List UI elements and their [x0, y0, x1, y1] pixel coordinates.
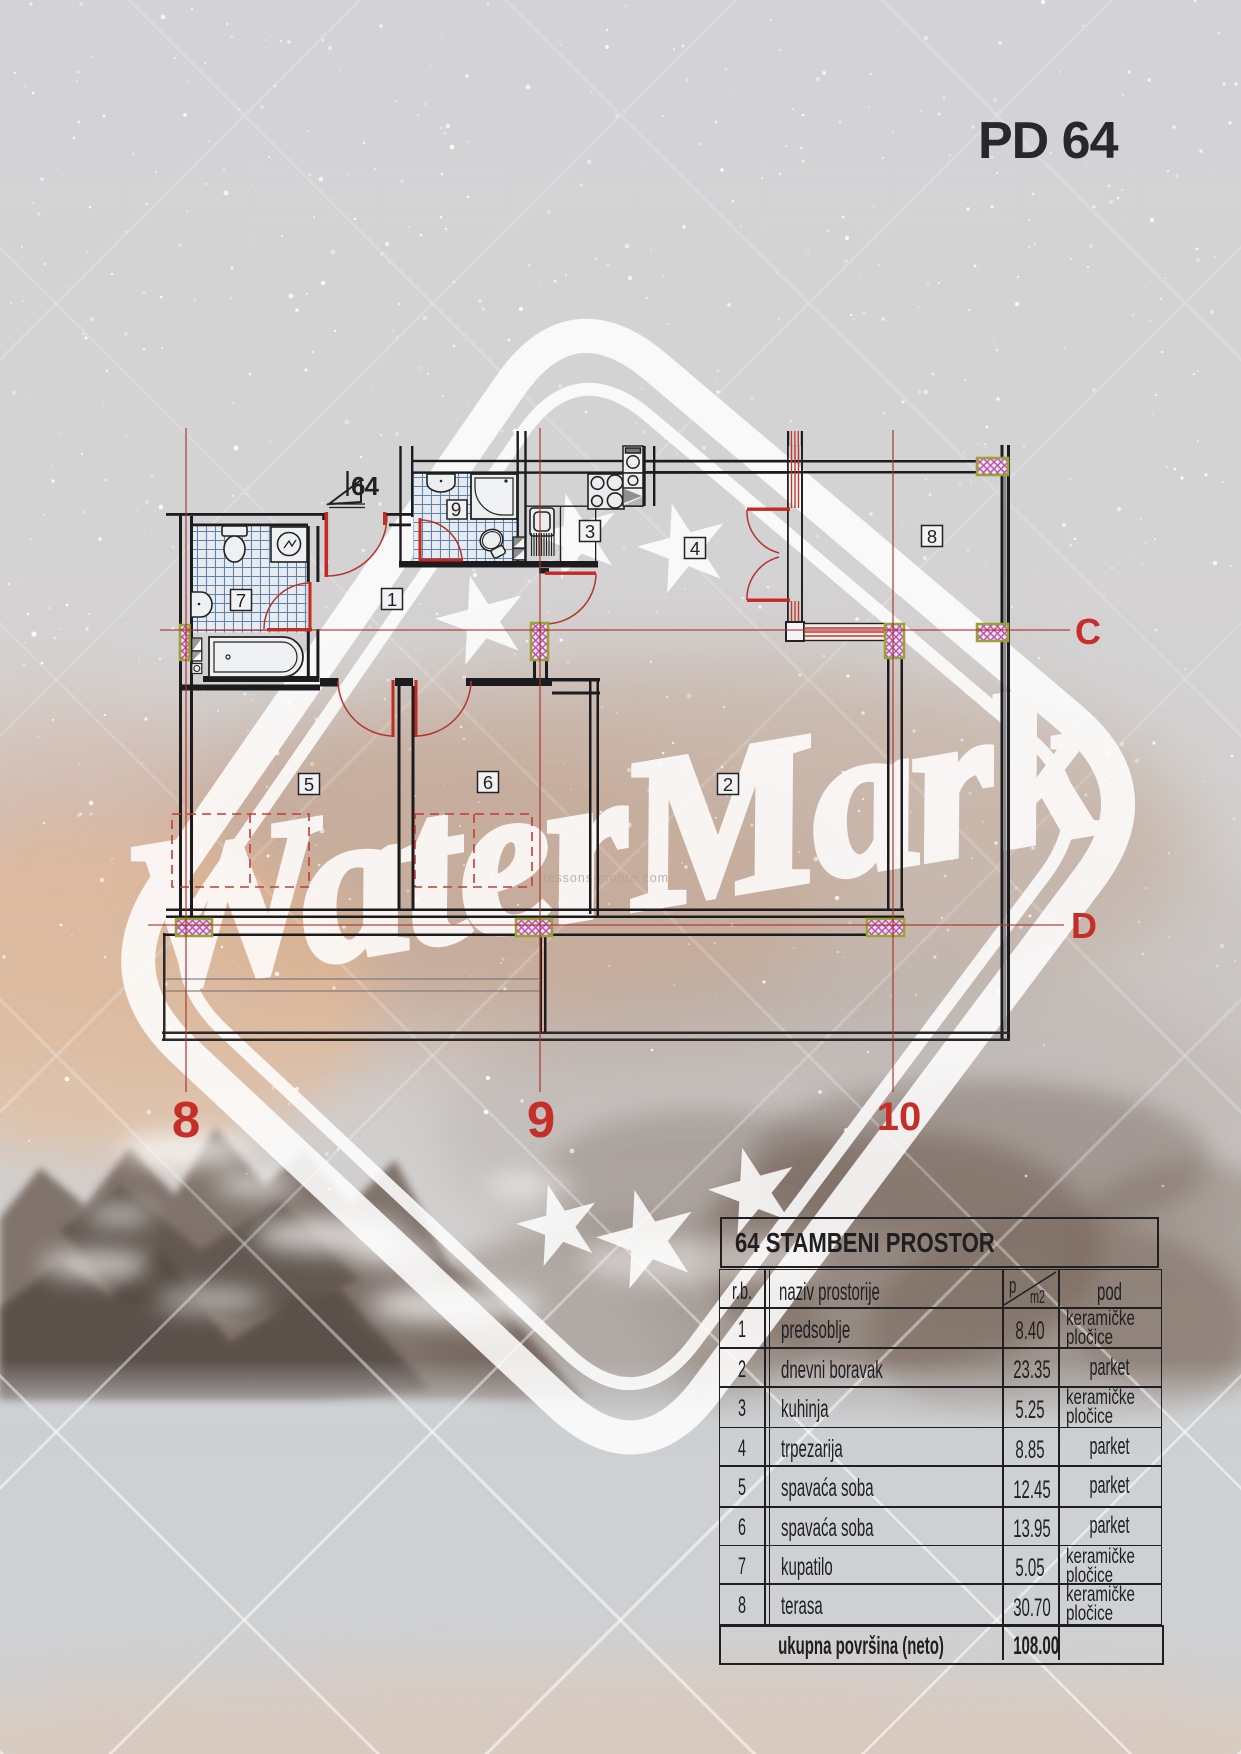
svg-text:10: 10	[877, 1095, 922, 1139]
svg-text:4: 4	[690, 538, 700, 559]
svg-text:1: 1	[387, 589, 397, 610]
svg-text:8: 8	[927, 526, 937, 547]
svg-text:5: 5	[304, 774, 314, 795]
svg-text:2: 2	[723, 774, 733, 795]
svg-text:8: 8	[172, 1091, 200, 1148]
svg-text:6: 6	[483, 772, 493, 793]
svg-text:7: 7	[236, 590, 246, 611]
svg-text:3: 3	[585, 521, 595, 542]
svg-text:9: 9	[527, 1091, 555, 1148]
svg-text:D: D	[1071, 905, 1097, 946]
svg-text:64: 64	[351, 471, 379, 501]
svg-text:C: C	[1075, 611, 1101, 652]
svg-text:9: 9	[451, 500, 462, 521]
